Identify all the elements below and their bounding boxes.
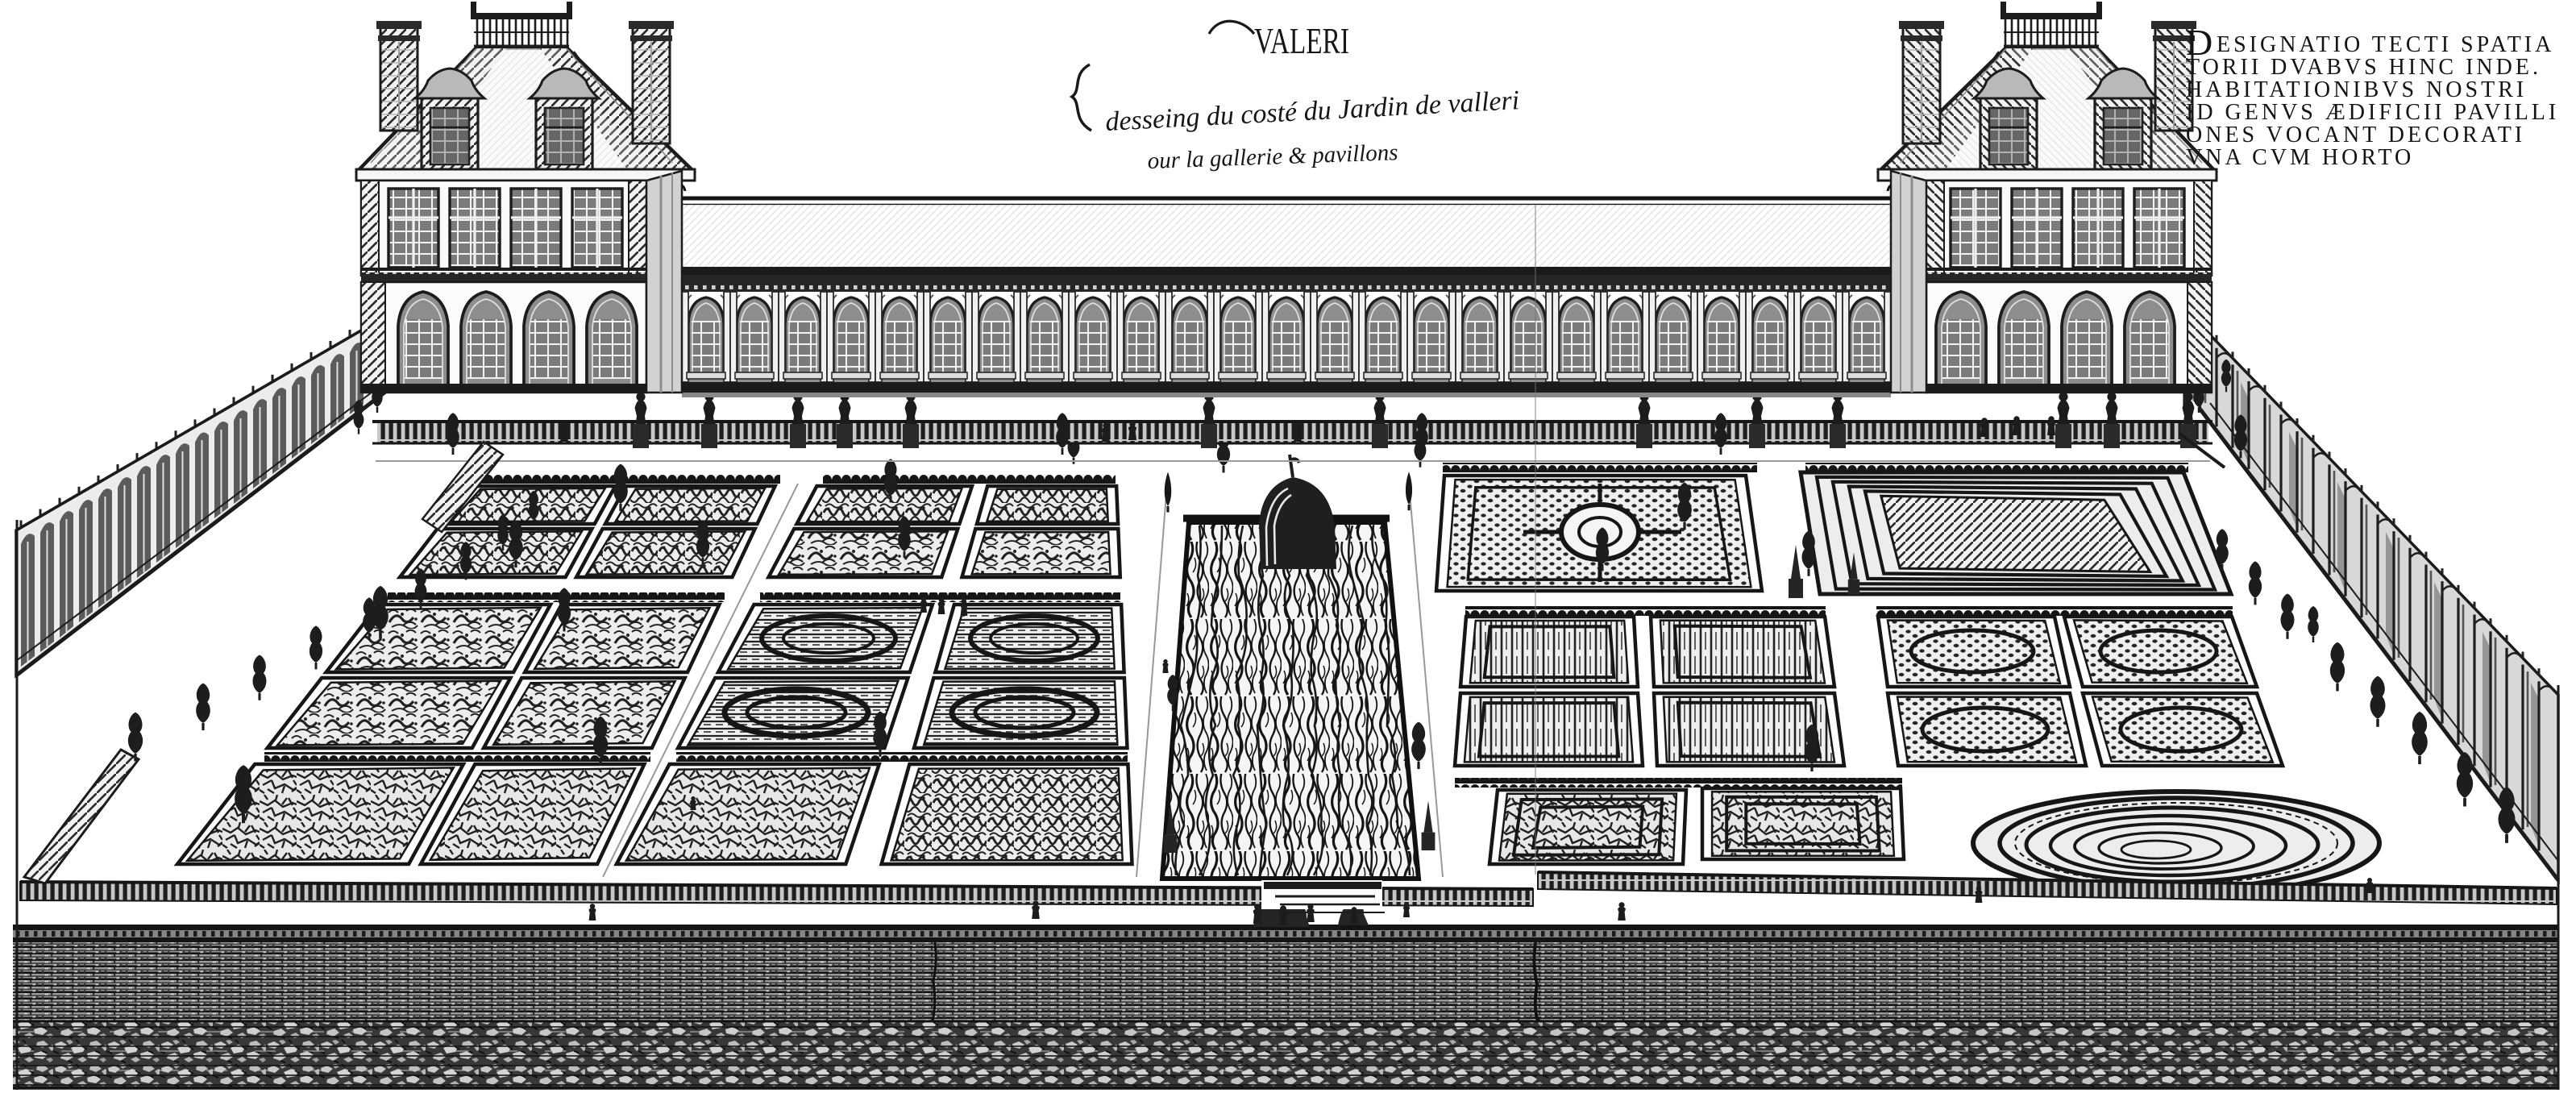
- svg-text:HABITATIONIBVS NOSTRI: HABITATIONIBVS NOSTRI: [2186, 77, 2527, 102]
- svg-text:ESIGNATIO TECTI SPATIA: ESIGNATIO TECTI SPATIA: [2217, 32, 2554, 57]
- svg-text:TORII DVABVS HINC INDE.: TORII DVABVS HINC INDE.: [2186, 55, 2541, 80]
- svg-text:ONES VOCANT DECORATI: ONES VOCANT DECORATI: [2186, 123, 2525, 148]
- svg-text:ID GENVS ÆDIFICII PAVILLI: ID GENVS ÆDIFICII PAVILLI: [2186, 100, 2559, 125]
- svg-text:VALERI: VALERI: [1254, 20, 1349, 61]
- svg-text:VNA CVM HORTO: VNA CVM HORTO: [2186, 145, 2414, 170]
